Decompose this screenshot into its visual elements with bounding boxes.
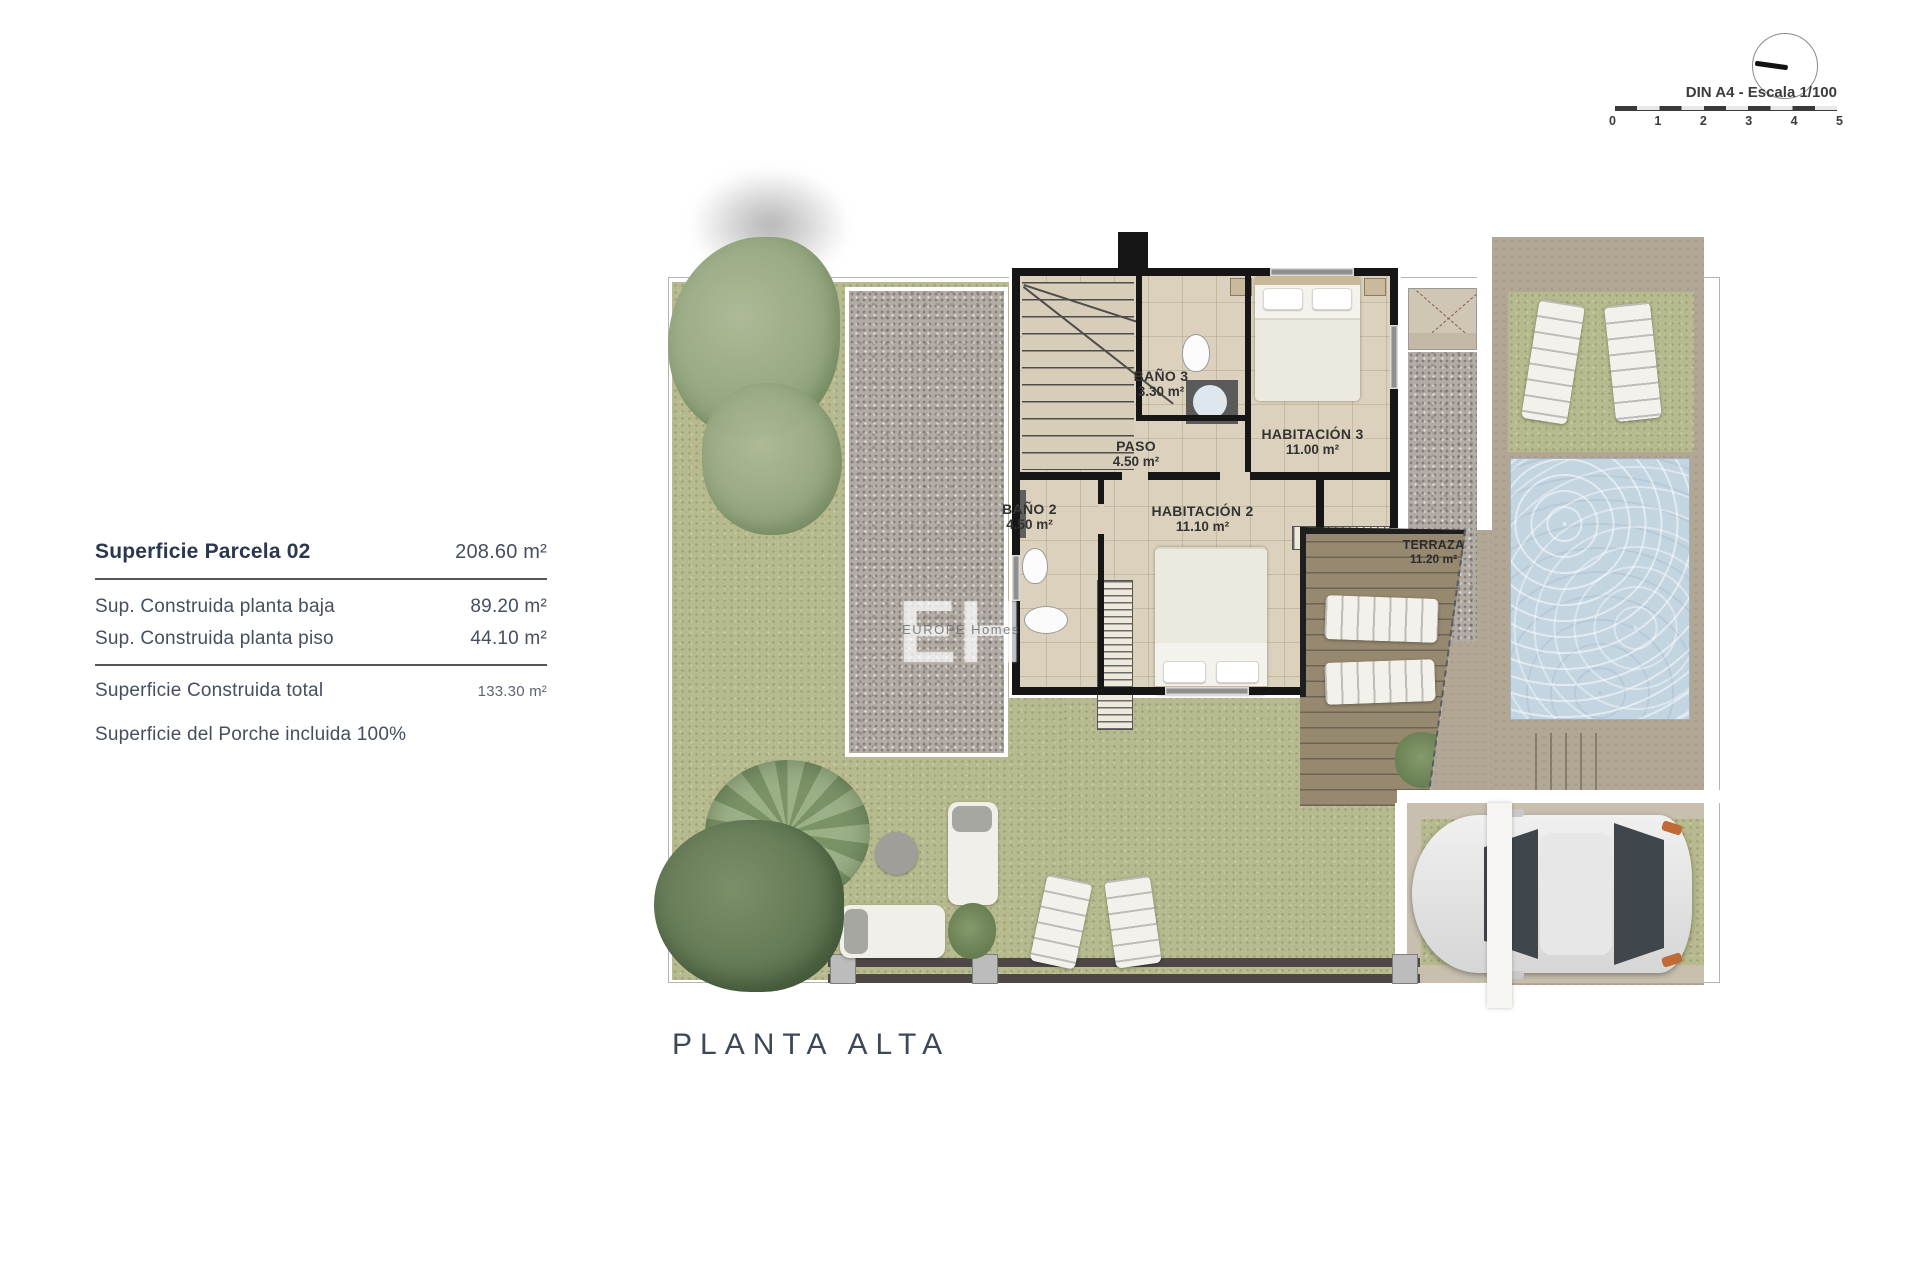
headboard (1255, 276, 1360, 285)
window (1270, 268, 1354, 276)
info-row-planta-piso: Sup. Construida planta piso 44.10 m² (95, 628, 547, 650)
pillow (1263, 288, 1303, 310)
pillow (1163, 661, 1206, 683)
room-name: TERRAZA (1386, 538, 1481, 552)
tree (702, 383, 842, 535)
fence-post (830, 954, 856, 984)
wall (1012, 472, 1398, 480)
window (1390, 325, 1398, 389)
info-value: 208.60 m² (455, 541, 547, 564)
tree (654, 820, 844, 992)
scale-tick: 4 (1791, 114, 1798, 128)
sun-lounger (1604, 302, 1662, 422)
scale-tick: 3 (1745, 114, 1752, 128)
room-area: 11.10 m² (1140, 519, 1265, 534)
info-value: 44.10 m² (470, 628, 547, 650)
pool-stairs (1535, 733, 1597, 791)
blanket (1255, 318, 1360, 401)
plant (948, 903, 996, 959)
fence-post (1392, 954, 1418, 984)
room-label-terraza: TERRAZA 11.20 m² (1386, 538, 1481, 566)
room-area: 4.50 m² (1092, 454, 1180, 469)
room-name: BAÑO 3 (1115, 368, 1207, 384)
watermark-logo: EH EUROPE Homes (898, 590, 1024, 637)
room-name: HABITACIÓN 2 (1140, 503, 1265, 519)
watermark-text: EUROPE Homes (898, 622, 1024, 637)
wall (1136, 415, 1251, 421)
window (1165, 687, 1249, 695)
car (1412, 815, 1692, 973)
info-value: 133.30 m² (478, 683, 547, 700)
info-label: Superficie Parcela 02 (95, 540, 311, 564)
surface-info-panel: Superficie Parcela 02 208.60 m² Sup. Con… (95, 540, 547, 746)
pergola-beam (1487, 803, 1512, 1008)
divider (95, 664, 547, 666)
coffee-table (875, 832, 918, 875)
info-row-total: Superficie Construida total 133.30 m² (95, 680, 547, 702)
pillow (1312, 288, 1352, 310)
scale-label: DIN A4 - Escala 1/100 (1615, 84, 1837, 101)
toilet (1182, 334, 1210, 372)
room-label-paso: PASO 4.50 m² (1092, 438, 1180, 469)
sun-lounger (1521, 299, 1585, 425)
info-label: Superficie Construida total (95, 680, 323, 702)
armchair (948, 802, 998, 905)
swimming-pool (1510, 458, 1690, 720)
terrace-wall (1300, 527, 1306, 697)
info-row-planta-baja: Sup. Construida planta baja 89.20 m² (95, 596, 547, 618)
room-label-habitacion3: HABITACIÓN 3 11.00 m² (1250, 426, 1375, 457)
sun-lounger (1324, 659, 1435, 705)
room-name: HABITACIÓN 3 (1250, 426, 1375, 442)
info-value: 89.20 m² (470, 596, 547, 618)
path-white-band (1397, 790, 1720, 803)
door-opening (1122, 472, 1148, 480)
room-label-habitacion2: HABITACIÓN 2 11.10 m² (1140, 503, 1265, 534)
info-row-porche: Superficie del Porche incluida 100% (95, 724, 547, 746)
scale-tick-labels: 0 1 2 3 4 5 (1609, 114, 1843, 128)
fence-rail (828, 974, 1420, 983)
scale-tick: 0 (1609, 114, 1616, 128)
pillow (1216, 661, 1259, 683)
toilet (1022, 548, 1048, 584)
floorplan-page: DIN A4 - Escala 1/100 0 1 2 3 4 5 Superf… (0, 0, 1920, 1280)
info-label: Sup. Construida planta baja (95, 596, 335, 618)
site-plan: EH EUROPE Homes BAÑO 3 3.30 m² PASO 4.50… (660, 225, 1725, 1005)
info-label: Sup. Construida planta piso (95, 628, 334, 650)
room-area: 11.20 m² (1386, 552, 1481, 566)
sofa (840, 905, 945, 958)
cushion (844, 909, 868, 954)
door-opening (1220, 472, 1250, 480)
room-area: 3.30 m² (1115, 384, 1207, 399)
room-label-bano2: BAÑO 2 4.50 m² (982, 501, 1077, 532)
compass-needle-icon (1755, 61, 1788, 70)
scale-tick: 1 (1654, 114, 1661, 128)
blanket (1155, 547, 1267, 643)
exterior-wall (1390, 268, 1398, 528)
plan-title: PLANTA ALTA (672, 1028, 950, 1062)
car-roof (1540, 833, 1612, 955)
cushion (952, 806, 992, 832)
room-area: 11.00 m² (1250, 442, 1375, 457)
room-area: 4.50 m² (982, 517, 1077, 532)
room-name: BAÑO 2 (982, 501, 1077, 517)
scale-bar (1615, 106, 1837, 111)
sun-lounger (1324, 595, 1438, 643)
scale-tick: 2 (1700, 114, 1707, 128)
void-band (1409, 333, 1476, 349)
sink (1024, 606, 1068, 634)
stair-guide-line (1024, 284, 1139, 323)
sunbathing-lawn (1508, 292, 1694, 452)
chimney-block (1118, 232, 1148, 270)
bed-habitacion-2 (1155, 547, 1267, 695)
nightstand (1364, 278, 1386, 296)
car-rear-window (1614, 823, 1664, 965)
info-label: Superficie del Porche incluida 100% (95, 724, 406, 746)
door-opening (1098, 504, 1104, 534)
info-row-parcela: Superficie Parcela 02 208.60 m² (95, 540, 547, 564)
divider (95, 578, 547, 580)
room-name: PASO (1092, 438, 1180, 454)
void-pergola-outline (1408, 288, 1477, 350)
scale-tick: 5 (1836, 114, 1843, 128)
bed-habitacion-3 (1255, 276, 1360, 401)
room-label-bano3: BAÑO 3 3.30 m² (1115, 368, 1207, 399)
